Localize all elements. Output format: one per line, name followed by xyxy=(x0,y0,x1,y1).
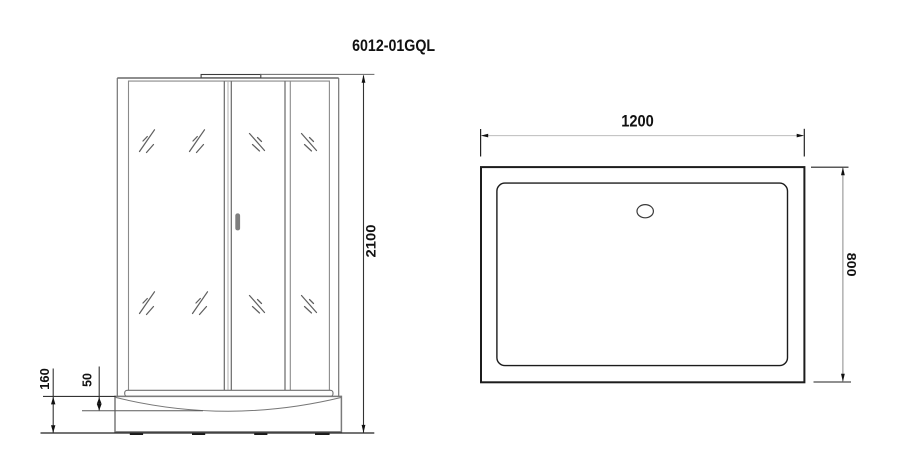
svg-text:160: 160 xyxy=(37,368,52,390)
svg-text:1200: 1200 xyxy=(621,111,654,130)
svg-text:800: 800 xyxy=(844,253,859,277)
svg-text:6012-01GQL: 6012-01GQL xyxy=(352,36,435,55)
svg-text:2100: 2100 xyxy=(363,225,378,258)
svg-text:50: 50 xyxy=(80,373,95,387)
